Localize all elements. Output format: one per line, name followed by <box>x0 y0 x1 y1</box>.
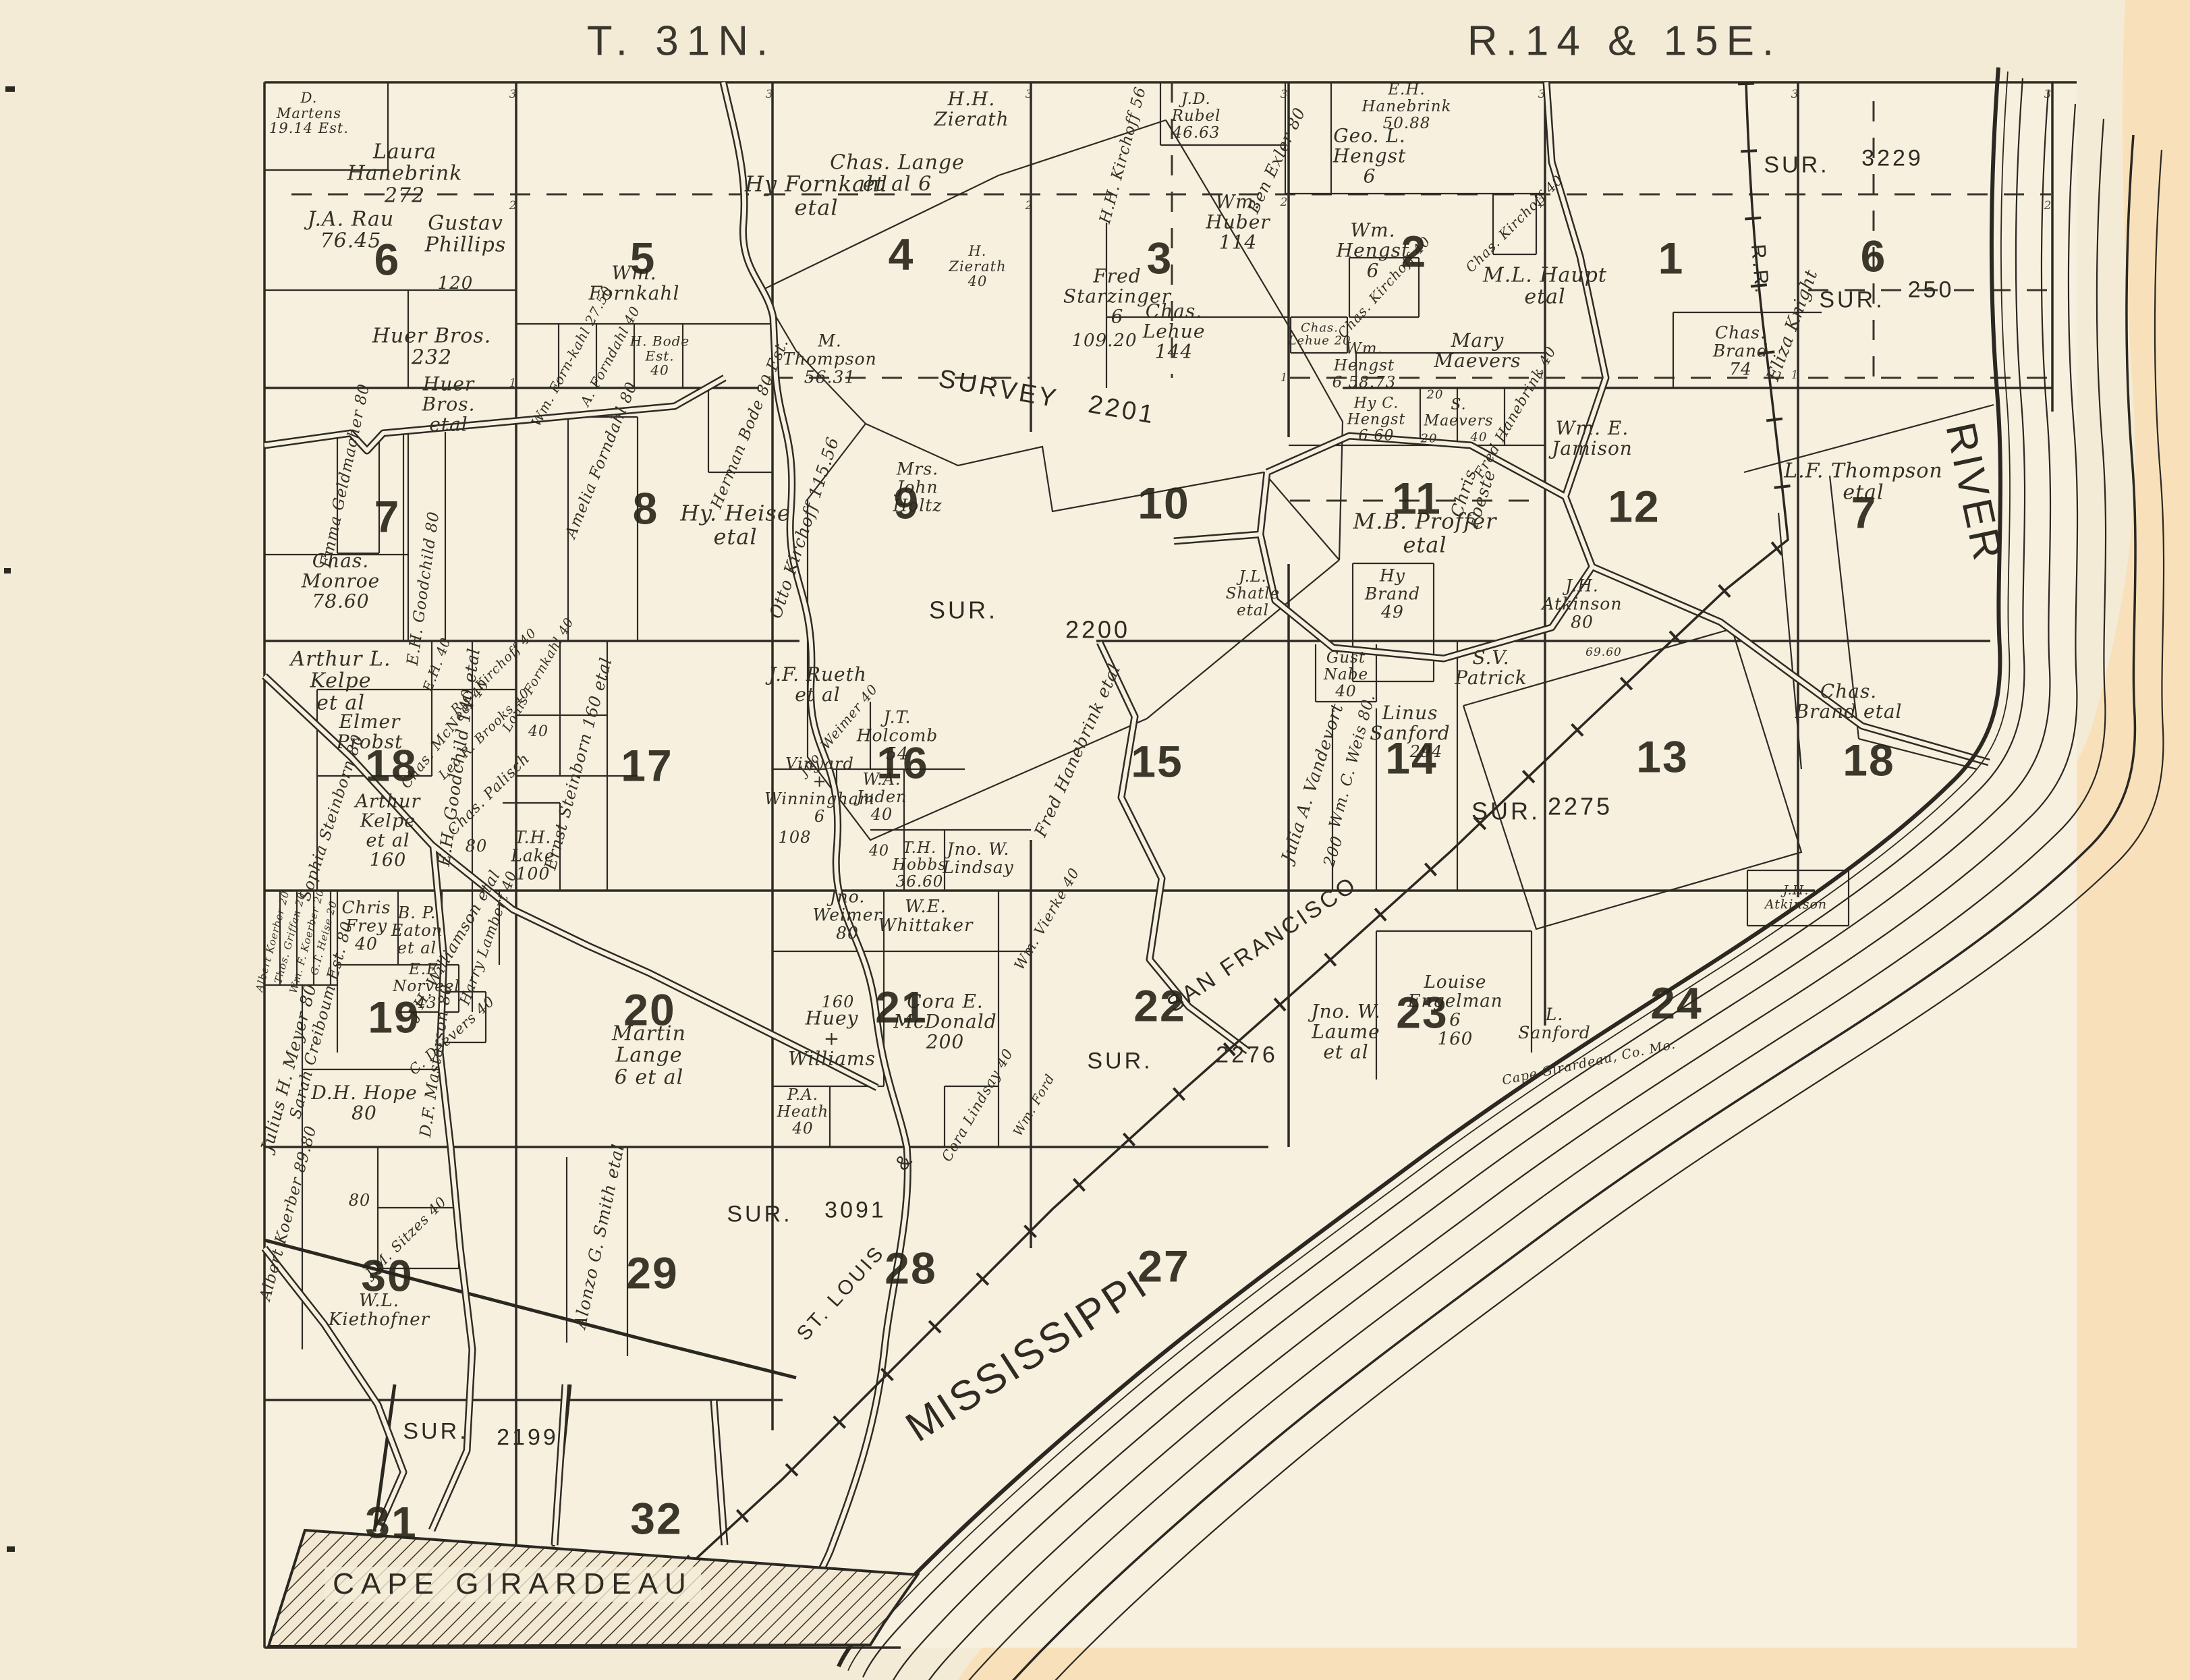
section-number: 12 <box>1608 482 1660 530</box>
map-label: Herman Bode 80 Est. <box>708 336 792 511</box>
section-number: 7 <box>1851 488 1878 536</box>
map-label: D.H. Hope 80 <box>311 1083 417 1123</box>
map-label: E.H. Hanebrink 50.88 <box>1361 82 1451 132</box>
map-label: W.E. Whittaker <box>878 897 974 935</box>
section-number: 6 <box>374 235 401 283</box>
map-label: SUR. <box>1471 799 1540 825</box>
map-label: Chas. Kirchoff 40 <box>1463 173 1566 275</box>
map-label: 2275 <box>1548 794 1612 820</box>
map-label: Alonzo G. Smith etal <box>571 1142 627 1331</box>
map-label: SUR. <box>1087 1049 1152 1074</box>
section-number: 11 <box>1392 474 1442 522</box>
section-number: 22 <box>1133 982 1185 1030</box>
corner-number: 1 <box>766 375 773 387</box>
map-label: 3091 <box>824 1198 887 1223</box>
map-label: H. Bode Est. 40 <box>630 335 690 379</box>
map-label: P.A. Heath 40 <box>777 1087 829 1137</box>
corner-number: 2 <box>1538 196 1546 208</box>
section-number: 17 <box>621 741 673 789</box>
section-number: 8 <box>633 484 659 532</box>
section-number: 31 <box>365 1499 417 1546</box>
section-number: 28 <box>885 1244 936 1292</box>
map-label: SUR. <box>1819 288 1884 313</box>
map-label: 2199 <box>497 1426 559 1451</box>
map-label: 2276 <box>1216 1043 1278 1068</box>
map-label: SAN FRANCISCO <box>1162 872 1361 1017</box>
map-label: Chas. Monroe 78.60 <box>302 551 380 613</box>
map-label: 2200 <box>1065 617 1130 644</box>
range-title: R.14 & 15E. <box>1467 20 1782 65</box>
map-label: Huer Bros. etal <box>422 374 475 436</box>
map-label: SUR. <box>727 1202 792 1227</box>
map-label: 120 <box>438 274 474 293</box>
map-label: 250 <box>1908 278 1955 303</box>
section-number: 15 <box>1131 737 1183 785</box>
map-label: Hy. Heise etal <box>680 501 791 548</box>
map-label: H. Zierath 40 <box>949 244 1006 289</box>
map-label: Chas. Lehue 144 <box>1143 302 1206 363</box>
map-label: 3229 <box>1861 146 1924 171</box>
map-label: 80 <box>349 1192 371 1210</box>
corner-number: 2 <box>1026 200 1033 212</box>
map-label: Hy Brand 49 <box>1365 567 1420 621</box>
section-number: 23 <box>1396 988 1448 1036</box>
map-label: Gustav Phillips <box>425 213 507 257</box>
map-label: 40 <box>528 724 549 740</box>
section-number: 10 <box>1138 479 1189 527</box>
map-label: 2201 <box>1086 391 1158 430</box>
corner-number: 3 <box>1791 88 1799 101</box>
map-label: J.D. Rubel 46.63 <box>1172 91 1221 141</box>
corner-number: 2 <box>2044 200 2052 212</box>
corner-number: 3 <box>1538 88 1546 101</box>
map-label: S. Maevers <box>1424 397 1494 429</box>
section-number: 7 <box>374 493 401 540</box>
map-label: H.H. Kirchoff 56 <box>1097 85 1150 225</box>
section-number: 2 <box>1401 227 1428 275</box>
section-number: 24 <box>1650 979 1702 1027</box>
map-label: 20 <box>1421 432 1438 445</box>
section-number: 21 <box>875 983 927 1031</box>
map-label: SUR. <box>403 1420 468 1445</box>
map-label: Jno. W. Lindsay <box>943 840 1014 876</box>
map-label: & <box>891 1148 918 1175</box>
map-label: Wm. E. Jamison <box>1552 418 1633 459</box>
corner-number: 1 <box>1791 369 1799 381</box>
map-label: Huer Bros. 232 <box>372 326 492 370</box>
map-label: Arthur L. Kelpe et al <box>290 648 391 714</box>
map-label: J.L. Shatle etal <box>1226 569 1281 619</box>
map-label: MISSISSIPPI <box>899 1262 1157 1451</box>
map-label: Wm. Vierke 40 <box>1012 866 1083 973</box>
map-label: ST. LOUIS <box>793 1241 890 1345</box>
map-label: 40 <box>869 843 889 860</box>
section-number: 3 <box>1147 234 1173 282</box>
section-number: 30 <box>361 1252 413 1299</box>
map-label: 200 <box>1321 834 1347 869</box>
map-label: Cora Lindsay 40 <box>939 1046 1016 1164</box>
section-number: 18 <box>1843 736 1894 784</box>
corner-number: 2 <box>1281 196 1288 208</box>
section-number: 6 <box>1861 232 1887 280</box>
map-label: Huey + Williams <box>788 1009 876 1070</box>
map-label: Amelia Forndahl 80 <box>563 380 641 541</box>
map-label: 40 <box>1471 430 1488 443</box>
map-label: Wm. Ford <box>1011 1072 1058 1139</box>
map-label: RIVER <box>1936 419 2010 567</box>
corner-number: 3 <box>1281 88 1288 101</box>
map-label: Ernst Steinborn 160 etal <box>542 656 615 872</box>
section-number: 20 <box>623 986 675 1034</box>
corner-number: 1 <box>1538 369 1546 381</box>
map-label: Hy C. Hengst 6 60 <box>1347 395 1406 443</box>
map-label: B. P. Eaton et al <box>391 905 443 957</box>
map-label: Cape Girardeau, Co. Mo. <box>1501 1038 1677 1088</box>
map-label: Geo. L. Hengst 6 <box>1333 126 1407 188</box>
section-number: 13 <box>1636 733 1688 781</box>
section-number: 32 <box>630 1494 682 1542</box>
section-number: 18 <box>365 741 417 789</box>
map-label: S.V. Patrick <box>1455 648 1527 688</box>
map-label: SURVEY <box>936 365 1061 414</box>
map-label: E.H. 40 <box>421 636 454 694</box>
map-label: SUR. <box>929 598 998 624</box>
section-number: 4 <box>889 230 915 278</box>
map-label: 80 <box>466 838 488 856</box>
map-label: Mary Maevers <box>1434 331 1521 371</box>
map-label: Jno. Weimer 80 <box>813 888 882 943</box>
section-number: 1 <box>1658 234 1685 282</box>
map-label: Chas. Brand 74 <box>1713 324 1768 379</box>
map-label: CAPE GIRARDEAU <box>325 1567 701 1602</box>
map-labels-layer: T. 31N. R.14 & 15E. D. Martens 19.14 Est… <box>0 0 2190 1680</box>
section-number: 19 <box>368 993 420 1041</box>
map-label: T.H. Hobbs 36.60 <box>893 840 947 890</box>
corner-number: 1 <box>509 377 517 389</box>
map-label: 109.20 <box>1072 331 1138 350</box>
map-label: J.H. Atkinson 80 <box>1542 577 1623 632</box>
section-number: 29 <box>626 1249 678 1297</box>
township-title: T. 31N. <box>587 20 776 65</box>
section-number: 27 <box>1138 1242 1189 1290</box>
map-label: Emma Geldmacher 80 <box>318 383 373 569</box>
section-number: 5 <box>630 234 656 282</box>
section-number: 16 <box>876 739 928 787</box>
map-label: J.H. Atkinson <box>1765 883 1827 911</box>
corner-number: 3 <box>766 88 773 101</box>
map-label: Fred Hanebrink etal <box>1031 661 1124 840</box>
map-label: M. Thompson 56.31 <box>783 332 877 387</box>
corner-number: 1 <box>1281 372 1288 384</box>
map-label: SUR. <box>1764 153 1829 178</box>
map-label: R.R. <box>1747 244 1773 297</box>
map-label: Chas. Brand etal <box>1795 681 1903 722</box>
map-label: Arthur Kelpe et al 160 <box>356 792 421 871</box>
corner-number: 3 <box>509 88 517 101</box>
map-label: Chas. Lange et al 6 <box>830 152 965 196</box>
section-number: 14 <box>1385 734 1437 782</box>
map-label: L. Sanford <box>1518 1005 1590 1042</box>
map-label: 108 <box>779 829 812 847</box>
section-number: 9 <box>894 479 920 527</box>
map-label: D. Martens 19.14 Est. <box>269 90 349 136</box>
corner-number: 2 <box>509 200 517 212</box>
plat-map-page: T. 31N. R.14 & 15E. D. Martens 19.14 Est… <box>0 0 2190 1680</box>
map-label: 69.60 <box>1585 646 1622 659</box>
corner-number: 3 <box>1026 88 1033 101</box>
map-label: H.H. Zierath <box>934 89 1009 130</box>
map-label: Laura Hanebrink 272 <box>347 141 463 206</box>
map-label: Wm. Huber 114 <box>1206 192 1270 254</box>
map-label: Wm. Hengst 6 58.73 <box>1332 341 1397 391</box>
corner-number: 3 <box>2044 88 2052 101</box>
map-label: Jno. W. Laume et al <box>1311 1002 1380 1063</box>
map-label: M.L. Haupt etal <box>1483 265 1607 309</box>
